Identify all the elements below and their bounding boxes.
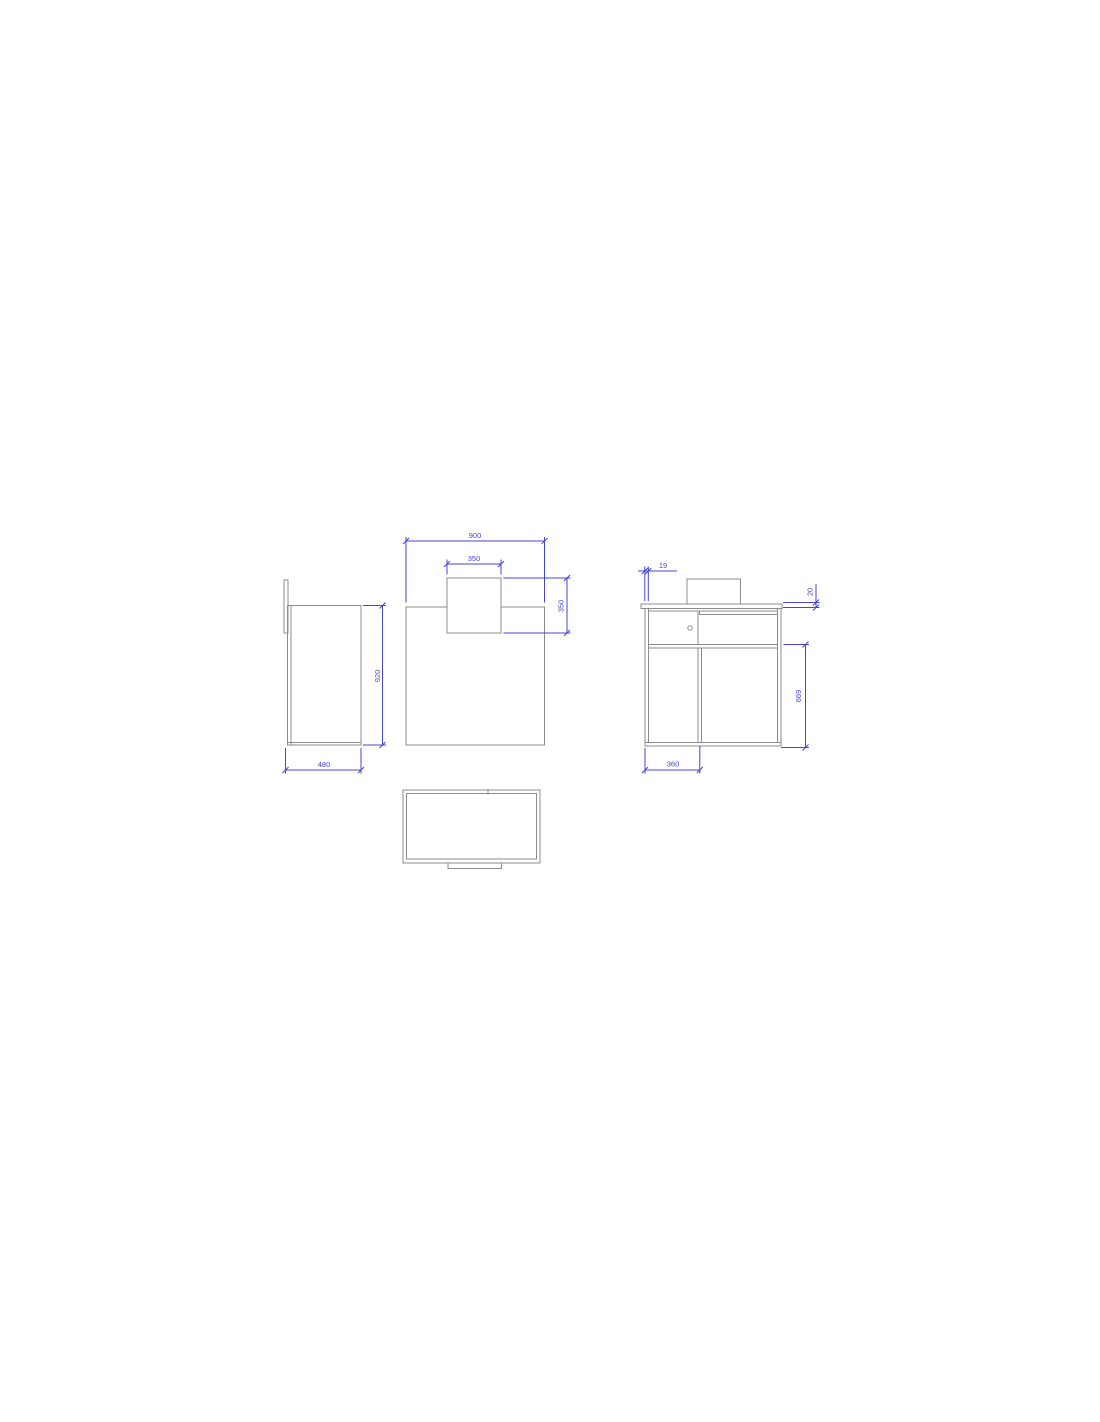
top-view — [403, 789, 540, 869]
dim-top-thickness-label: 20 — [806, 588, 815, 596]
drawer-knob — [688, 626, 692, 630]
top-view-inner-line — [407, 794, 537, 860]
section-view-right-panel — [778, 609, 782, 743]
dim-front-width-label: 900 — [469, 531, 482, 540]
front-view-hatch-box — [447, 578, 501, 633]
dim-side-height-label: 920 — [373, 670, 382, 683]
drawing-page: 920 480 900 350 350 — [0, 0, 1100, 1422]
front-view — [406, 578, 545, 745]
section-view-countertop — [641, 604, 782, 609]
section-view-hatch-box — [687, 579, 741, 604]
dim-compartment-width-label: 360 — [667, 760, 680, 769]
top-view-outline — [403, 790, 540, 863]
dim-hatch-width-label: 350 — [468, 554, 481, 563]
section-view-drawer — [649, 611, 699, 645]
section-view — [641, 579, 782, 746]
section-view-bottom-panel — [645, 743, 781, 747]
technical-drawing-canvas: 920 480 900 350 350 — [0, 0, 1100, 1422]
dim-panel-thickness-lines — [638, 567, 677, 602]
dim-hatch-height-label: 350 — [557, 600, 566, 613]
section-view-divider — [698, 648, 702, 743]
section-view-top-rail — [700, 611, 778, 615]
section-view-dimensions: 19 20 669 360 — [638, 561, 820, 774]
section-view-shelf — [649, 645, 778, 649]
side-view-panel-lines — [288, 606, 362, 746]
dim-side-depth-label: 480 — [318, 760, 331, 769]
dim-lower-height-label: 669 — [794, 690, 803, 703]
side-view-body — [288, 606, 362, 746]
side-view-dimensions: 920 480 — [283, 603, 387, 774]
top-view-hatch-box — [448, 863, 502, 869]
side-view — [284, 580, 361, 745]
dim-panel-thickness-label: 19 — [659, 561, 667, 570]
section-view-left-panel — [645, 609, 649, 743]
